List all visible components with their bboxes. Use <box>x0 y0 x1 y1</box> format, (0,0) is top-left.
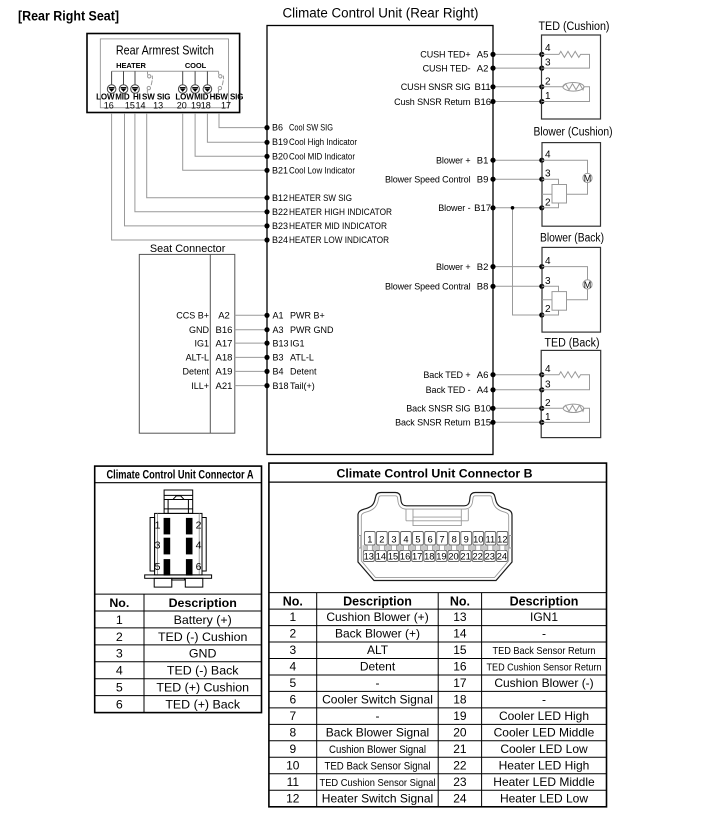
svg-text:Heater LED High: Heater LED High <box>499 758 590 772</box>
svg-text:CUSH SNSR SIG: CUSH SNSR SIG <box>401 82 471 92</box>
svg-text:3: 3 <box>155 540 161 552</box>
svg-text:No.: No. <box>109 596 129 610</box>
svg-text:B20: B20 <box>272 151 288 161</box>
svg-text:3: 3 <box>545 379 551 390</box>
svg-text:Cooler LED Low: Cooler LED Low <box>500 742 588 756</box>
svg-text:Detent: Detent <box>290 367 317 377</box>
svg-text:4: 4 <box>545 256 551 267</box>
svg-text:Detent: Detent <box>360 660 396 674</box>
svg-text:4: 4 <box>545 150 551 161</box>
svg-text:20: 20 <box>177 101 187 111</box>
svg-text:3: 3 <box>545 57 551 68</box>
svg-text:Description: Description <box>343 595 412 609</box>
svg-text:Climate Control Unit Connector: Climate Control Unit Connector A <box>107 470 254 482</box>
svg-text:M: M <box>584 280 592 290</box>
svg-text:17: 17 <box>221 101 231 111</box>
svg-text:A2: A2 <box>477 63 489 74</box>
svg-text:Blower Speed Control: Blower Speed Control <box>385 174 471 184</box>
svg-text:HEATER LOW INDICATOR: HEATER LOW INDICATOR <box>289 235 389 245</box>
svg-text:5: 5 <box>289 676 296 690</box>
svg-text:1: 1 <box>116 613 123 627</box>
svg-text:B23: B23 <box>272 221 288 231</box>
svg-text:2: 2 <box>196 520 202 532</box>
svg-text:Cushion Blower (+): Cushion Blower (+) <box>326 610 428 624</box>
svg-text:14: 14 <box>376 551 386 561</box>
svg-text:15: 15 <box>453 643 467 657</box>
svg-text:A3: A3 <box>273 325 284 335</box>
svg-text:6: 6 <box>427 535 432 545</box>
svg-text:15: 15 <box>388 551 398 561</box>
svg-text:4: 4 <box>545 43 551 54</box>
svg-text:4: 4 <box>116 664 123 678</box>
svg-text:Climate Control Unit (Rear Rig: Climate Control Unit (Rear Right) <box>283 5 479 20</box>
svg-text:1: 1 <box>545 91 551 102</box>
svg-text:Cooler Switch Signal: Cooler Switch Signal <box>322 693 433 707</box>
svg-text:Seat Connector: Seat Connector <box>150 243 226 255</box>
svg-text:B8: B8 <box>477 282 489 293</box>
svg-text:Cool High Indicator: Cool High Indicator <box>289 137 357 147</box>
svg-text:ALT: ALT <box>367 643 389 657</box>
svg-text:Back TED +: Back TED + <box>423 370 470 380</box>
svg-text:A1: A1 <box>273 311 284 321</box>
svg-text:10: 10 <box>286 758 300 772</box>
svg-text:Blower +: Blower + <box>436 262 470 272</box>
svg-text:14: 14 <box>453 627 467 641</box>
svg-text:Blower +: Blower + <box>436 155 470 165</box>
svg-text:ATL-L: ATL-L <box>290 353 314 363</box>
svg-text:PWR B+: PWR B+ <box>290 311 325 321</box>
svg-text:7: 7 <box>289 709 296 723</box>
svg-text:B4: B4 <box>273 367 284 377</box>
svg-text:19: 19 <box>436 551 446 561</box>
svg-text:[Rear Right Seat]: [Rear Right Seat] <box>18 8 119 23</box>
svg-text:CUSH TED-: CUSH TED- <box>423 63 471 73</box>
svg-text:2: 2 <box>289 627 296 641</box>
svg-text:12: 12 <box>286 791 300 805</box>
svg-text:9: 9 <box>464 535 469 545</box>
svg-text:16: 16 <box>453 660 467 674</box>
svg-text:B12: B12 <box>272 193 288 203</box>
svg-text:B18: B18 <box>273 381 289 391</box>
svg-text:18: 18 <box>453 693 467 707</box>
svg-text:2: 2 <box>379 535 384 545</box>
svg-text:A21: A21 <box>216 381 233 392</box>
svg-text:B22: B22 <box>272 207 288 217</box>
svg-text:Heater LED Low: Heater LED Low <box>500 791 588 805</box>
svg-text:Cooler LED Middle: Cooler LED Middle <box>494 725 595 739</box>
svg-text:Description: Description <box>169 596 237 610</box>
svg-text:Cool SW SIG: Cool SW SIG <box>289 123 333 133</box>
svg-text:5: 5 <box>116 681 123 695</box>
svg-text:B9: B9 <box>477 175 489 186</box>
svg-text:No.: No. <box>283 595 303 609</box>
svg-text:TED (Back): TED (Back) <box>545 337 600 349</box>
svg-text:B15: B15 <box>474 418 491 429</box>
svg-text:A4: A4 <box>477 385 489 396</box>
svg-text:24: 24 <box>453 791 467 805</box>
svg-text:3: 3 <box>545 169 551 180</box>
svg-text:TED (-) Cushion: TED (-) Cushion <box>158 630 248 644</box>
svg-text:Description: Description <box>510 595 579 609</box>
svg-text:IG1: IG1 <box>194 338 209 348</box>
svg-text:B21: B21 <box>272 165 288 175</box>
svg-text:23: 23 <box>485 551 495 561</box>
svg-text:23: 23 <box>453 775 467 789</box>
svg-text:Back TED -: Back TED - <box>426 385 471 395</box>
svg-text:B16: B16 <box>216 325 233 336</box>
svg-text:Climate Control Unit Connector: Climate Control Unit Connector B <box>337 467 533 481</box>
svg-text:18: 18 <box>424 551 434 561</box>
svg-text:IGN1: IGN1 <box>530 610 558 624</box>
svg-text:18: 18 <box>201 101 211 111</box>
svg-text:13: 13 <box>453 610 467 624</box>
svg-text:A5: A5 <box>477 50 489 61</box>
svg-text:ILL+: ILL+ <box>191 381 209 391</box>
svg-text:Tail(+): Tail(+) <box>290 381 315 391</box>
svg-text:2: 2 <box>545 304 551 315</box>
svg-text:A2: A2 <box>218 311 230 322</box>
svg-text:HEATER SW SIG: HEATER SW SIG <box>289 193 352 203</box>
svg-text:12: 12 <box>497 535 507 545</box>
svg-text:Blower Speed Contral: Blower Speed Contral <box>385 282 471 292</box>
svg-text:Heater LED Middle: Heater LED Middle <box>493 775 595 789</box>
svg-text:4: 4 <box>545 364 551 375</box>
svg-text:7: 7 <box>440 535 445 545</box>
svg-text:10: 10 <box>473 535 483 545</box>
svg-text:Detent: Detent <box>182 367 209 377</box>
svg-text:A6: A6 <box>477 370 489 381</box>
svg-text:1: 1 <box>545 412 551 423</box>
svg-text:17: 17 <box>412 551 422 561</box>
svg-text:Cushion Blower Signal: Cushion Blower Signal <box>329 744 426 756</box>
svg-text:CCS B+: CCS B+ <box>176 311 209 321</box>
svg-text:Cool Low Indicator: Cool Low Indicator <box>289 165 355 175</box>
svg-text:4: 4 <box>196 540 202 552</box>
svg-text:2: 2 <box>545 398 551 409</box>
svg-text:B10: B10 <box>474 404 491 415</box>
svg-text:TED Cushion Sensor Signal: TED Cushion Sensor Signal <box>320 777 436 789</box>
svg-text:Cush SNSR Return: Cush SNSR Return <box>394 97 471 107</box>
svg-text:CUSH TED+: CUSH TED+ <box>420 50 470 60</box>
svg-text:TED (+) Cushion: TED (+) Cushion <box>156 681 249 695</box>
svg-text:GND: GND <box>189 647 217 661</box>
svg-text:Back Blower (+): Back Blower (+) <box>335 627 420 641</box>
svg-text:1: 1 <box>289 610 296 624</box>
svg-text:Blower (Back): Blower (Back) <box>540 232 604 244</box>
svg-text:IG1: IG1 <box>290 338 305 348</box>
svg-text:19: 19 <box>453 709 467 723</box>
svg-text:HEATER HIGH INDICATOR: HEATER HIGH INDICATOR <box>289 207 392 217</box>
svg-text:GND: GND <box>189 325 210 335</box>
svg-text:PWR GND: PWR GND <box>290 325 334 335</box>
svg-text:20: 20 <box>453 725 467 739</box>
svg-text:TED Back Sensor Return: TED Back Sensor Return <box>493 645 596 657</box>
svg-text:11: 11 <box>287 775 300 789</box>
svg-text:Rear Armrest Switch: Rear Armrest Switch <box>116 44 214 58</box>
svg-text:8: 8 <box>289 725 296 739</box>
svg-text:17: 17 <box>453 676 467 690</box>
svg-text:No.: No. <box>450 595 470 609</box>
svg-text:Heater Switch Signal: Heater Switch Signal <box>322 791 433 805</box>
svg-text:Blower -: Blower - <box>438 203 470 213</box>
svg-text:3: 3 <box>289 643 296 657</box>
svg-text:ALT-L: ALT-L <box>186 353 209 363</box>
svg-text:Back SNSR SIG: Back SNSR SIG <box>406 404 470 414</box>
svg-text:14: 14 <box>135 101 145 111</box>
svg-text:HEATER MID INDICATOR: HEATER MID INDICATOR <box>289 221 387 231</box>
svg-text:B11: B11 <box>474 82 490 93</box>
svg-text:15: 15 <box>125 101 135 111</box>
svg-text:1: 1 <box>155 520 161 532</box>
svg-text:HEATER: HEATER <box>116 61 146 70</box>
svg-text:B19: B19 <box>272 137 288 147</box>
svg-text:24: 24 <box>497 551 507 561</box>
svg-text:A19: A19 <box>216 367 233 378</box>
svg-text:5: 5 <box>415 535 420 545</box>
svg-text:Battery (+): Battery (+) <box>174 613 232 627</box>
svg-text:9: 9 <box>289 742 296 756</box>
svg-text:19: 19 <box>191 101 201 111</box>
svg-text:5: 5 <box>155 561 161 573</box>
svg-text:TED Cushion Sensor Return: TED Cushion Sensor Return <box>487 662 602 674</box>
svg-text:3: 3 <box>391 535 396 545</box>
svg-text:A17: A17 <box>216 338 233 349</box>
svg-text:Blower (Cushion): Blower (Cushion) <box>534 126 613 138</box>
svg-text:Cushion Blower (-): Cushion Blower (-) <box>494 676 593 690</box>
svg-text:21: 21 <box>460 551 470 561</box>
svg-text:Back SNSR Return: Back SNSR Return <box>395 418 471 428</box>
svg-text:A18: A18 <box>216 353 233 364</box>
svg-text:TED (+) Back: TED (+) Back <box>165 697 241 711</box>
svg-text:COOL: COOL <box>185 61 207 70</box>
svg-text:M: M <box>584 174 592 184</box>
svg-text:3: 3 <box>116 647 123 661</box>
svg-text:2: 2 <box>116 630 123 644</box>
svg-text:B16: B16 <box>474 97 491 108</box>
svg-text:TED (Cushion): TED (Cushion) <box>539 21 610 33</box>
svg-text:2: 2 <box>545 197 551 208</box>
svg-text:B13: B13 <box>273 338 289 348</box>
svg-text:B1: B1 <box>477 156 489 167</box>
svg-text:Cooler LED High: Cooler LED High <box>499 709 589 723</box>
svg-text:4: 4 <box>403 535 408 545</box>
svg-text:-: - <box>376 709 380 723</box>
svg-text:B24: B24 <box>272 235 288 245</box>
svg-text:21: 21 <box>453 742 467 756</box>
svg-text:-: - <box>542 627 546 641</box>
svg-text:20: 20 <box>448 551 458 561</box>
svg-text:4: 4 <box>289 660 296 674</box>
svg-text:13: 13 <box>153 101 163 111</box>
svg-text:B2: B2 <box>477 262 489 273</box>
svg-text:B17: B17 <box>474 203 491 214</box>
svg-text:TED (-) Back: TED (-) Back <box>167 664 239 678</box>
svg-text:22: 22 <box>453 758 467 772</box>
svg-text:8: 8 <box>452 535 457 545</box>
svg-text:Back Blower Signal: Back Blower Signal <box>326 725 429 739</box>
svg-text:-: - <box>542 693 546 707</box>
svg-text:11: 11 <box>485 535 495 545</box>
svg-text:Cool MID Indicator: Cool MID Indicator <box>289 151 355 161</box>
svg-text:13: 13 <box>364 551 374 561</box>
svg-text:1: 1 <box>367 535 372 545</box>
svg-text:B3: B3 <box>273 353 284 363</box>
svg-text:B6: B6 <box>272 123 283 133</box>
svg-text:3: 3 <box>545 276 551 287</box>
svg-text:-: - <box>376 676 380 690</box>
svg-text:6: 6 <box>116 697 123 711</box>
svg-text:2: 2 <box>545 76 551 87</box>
svg-text:6: 6 <box>196 561 202 573</box>
svg-text:TED Back Sensor Signal: TED Back Sensor Signal <box>325 760 431 772</box>
svg-text:16: 16 <box>400 551 410 561</box>
svg-text:6: 6 <box>289 693 296 707</box>
svg-text:22: 22 <box>473 551 483 561</box>
svg-text:16: 16 <box>104 101 114 111</box>
